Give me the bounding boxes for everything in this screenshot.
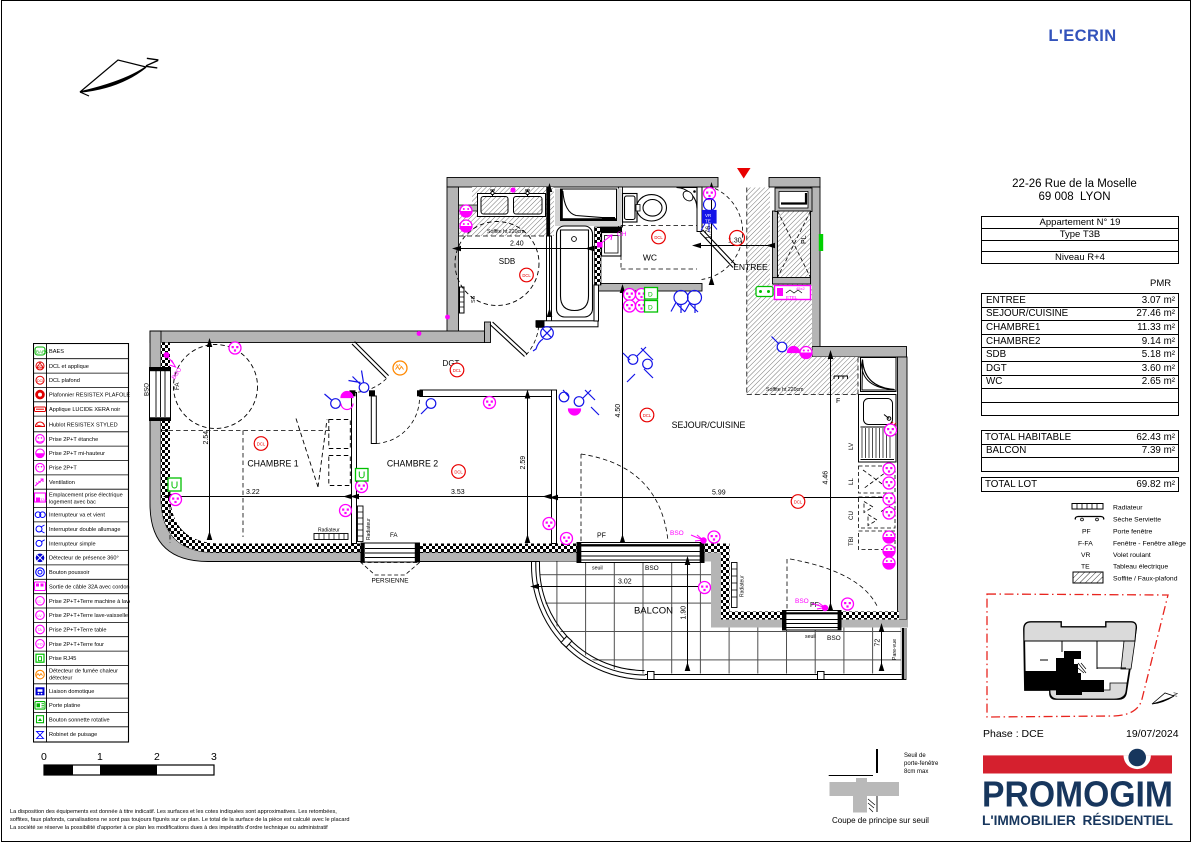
svg-text:2.54: 2.54 — [203, 431, 210, 445]
svg-text:2.40: 2.40 — [510, 241, 524, 248]
svg-text:1.90: 1.90 — [681, 606, 688, 620]
svg-text:PERSIENNE: PERSIENNE — [372, 578, 409, 585]
svg-text:ENTREE: ENTREE — [733, 262, 768, 272]
svg-text:Radiateur: Radiateur — [366, 518, 372, 540]
svg-text:Coupe de principe sur seuil: Coupe de principe sur seuil — [832, 816, 929, 825]
svg-text:BSO: BSO — [795, 598, 809, 605]
svg-text:WC: WC — [643, 253, 657, 263]
svg-text:Soffite ht 220cm: Soffite ht 220cm — [487, 229, 524, 235]
svg-text:SEJOUR/CUISINE: SEJOUR/CUISINE — [672, 420, 746, 430]
svg-text:4.46: 4.46 — [823, 471, 830, 485]
svg-text:SDB: SDB — [499, 257, 515, 266]
svg-text:VR: VR — [705, 213, 712, 218]
svg-text:8cm max: 8cm max — [904, 769, 928, 775]
svg-text:PF: PF — [597, 533, 606, 540]
svg-text:BSO: BSO — [645, 565, 659, 572]
svg-text:LL: LL — [848, 478, 855, 485]
svg-text:3.22: 3.22 — [246, 489, 260, 496]
svg-text:5.99: 5.99 — [712, 490, 726, 497]
svg-text:SS: SS — [471, 295, 477, 303]
svg-text:CHAMBRE 2: CHAMBRE 2 — [387, 459, 438, 469]
svg-text:AA: AA — [396, 363, 402, 368]
svg-text:45x2: 45x2 — [796, 286, 805, 291]
svg-text:F: F — [836, 398, 840, 405]
svg-text:BSO: BSO — [827, 635, 841, 642]
svg-text:D: D — [648, 305, 653, 312]
svg-text:TBl: TBl — [848, 537, 855, 546]
svg-text:CU: CU — [848, 511, 855, 520]
svg-text:BSO: BSO — [171, 367, 183, 381]
svg-text:Pare-vue: Pare-vue — [892, 639, 898, 660]
svg-text:porte-fenêtre: porte-fenêtre — [904, 761, 939, 767]
svg-text:3.02: 3.02 — [618, 579, 632, 586]
svg-text:72: 72 — [875, 639, 882, 647]
svg-text:4.50: 4.50 — [615, 404, 622, 418]
svg-text:CHAMBRE 1: CHAMBRE 1 — [247, 459, 298, 469]
svg-text:BALCON: BALCON — [634, 606, 673, 617]
svg-text:seuil: seuil — [592, 566, 603, 572]
svg-text:PL: PL — [801, 235, 808, 244]
svg-text:D: D — [648, 292, 653, 299]
svg-text:Radiateur: Radiateur — [740, 575, 746, 597]
svg-text:seuil: seuil — [805, 634, 816, 640]
svg-text:Radiateur: Radiateur — [318, 528, 340, 534]
svg-text:ETEL: ETEL — [786, 295, 798, 300]
svg-text:2.59: 2.59 — [520, 456, 527, 470]
svg-text:LV: LV — [848, 442, 855, 450]
svg-text:3.53: 3.53 — [451, 489, 465, 496]
svg-text:TE: TE — [705, 219, 711, 224]
svg-text:BSO: BSO — [144, 383, 151, 396]
svg-text:FA: FA — [174, 382, 181, 390]
svg-text:CH: CH — [617, 231, 627, 238]
svg-text:Soffite ht 220cm: Soffite ht 220cm — [766, 387, 803, 393]
svg-text:FA: FA — [390, 532, 398, 539]
svg-text:BSO: BSO — [670, 530, 684, 537]
svg-text:Seuil de: Seuil de — [904, 753, 926, 759]
